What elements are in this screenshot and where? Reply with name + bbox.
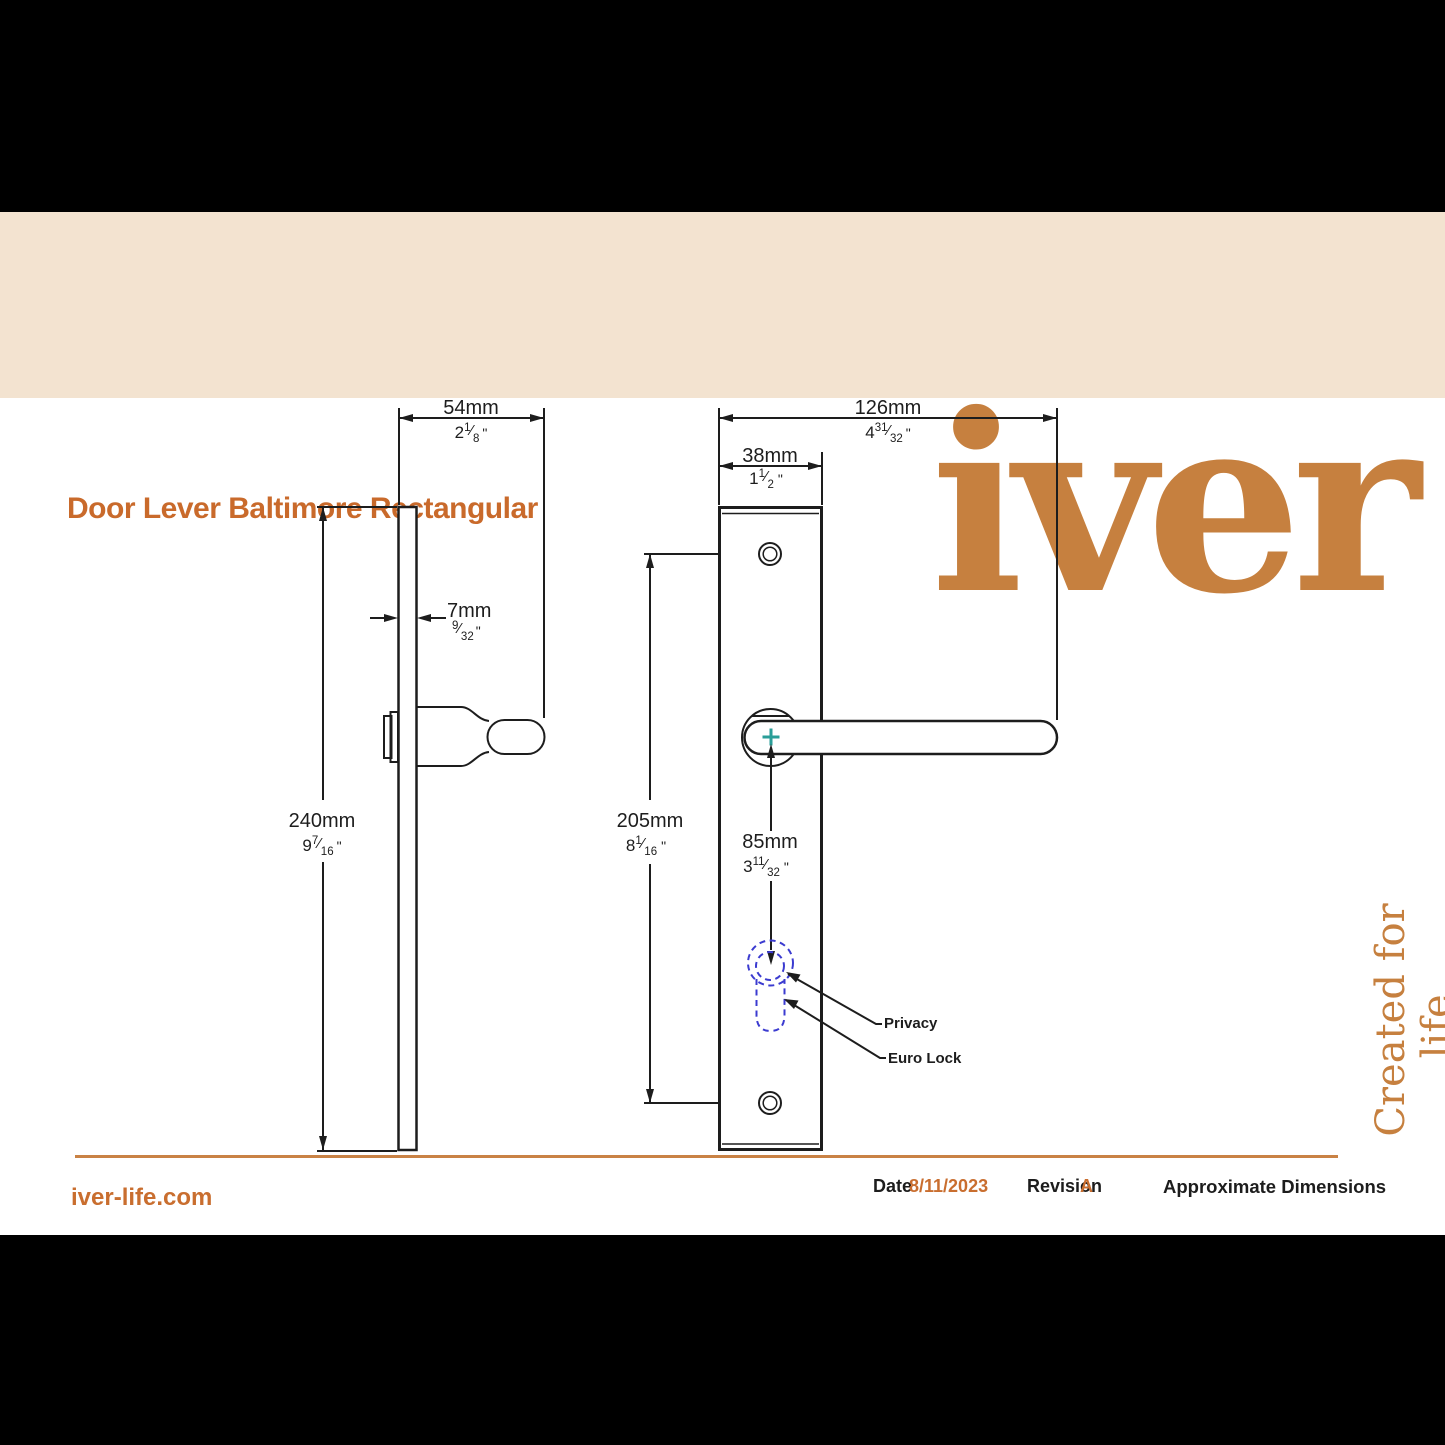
- privacy-label: Privacy: [884, 1015, 938, 1032]
- euro-lock-label: Euro Lock: [888, 1050, 962, 1067]
- bottom-screw-hole-inner: [763, 1096, 777, 1110]
- side-view-backplate: [399, 507, 417, 1150]
- arrowhead: [319, 507, 327, 521]
- dim-240mm-imperial: 97⁄16": [302, 835, 341, 858]
- dim-205mm-label: 205mm: [617, 810, 684, 832]
- arrowhead: [1043, 414, 1057, 422]
- website-link[interactable]: iver-life.com: [71, 1184, 212, 1212]
- dim-126mm-imperial: 431⁄32": [865, 422, 911, 445]
- dim-240mm-label: 240mm: [289, 810, 356, 832]
- dim-38mm-label: 38mm: [742, 445, 798, 467]
- lever-side-bottom-edge: [417, 752, 489, 766]
- arrowhead: [808, 462, 822, 470]
- top-screw-hole-inner: [763, 547, 777, 561]
- arrowhead: [319, 1136, 327, 1150]
- technical-drawing: 54mm 21⁄8" 240mm 97⁄16" 7mm: [0, 398, 1445, 1235]
- dim-7mm-imperial: 9⁄32": [452, 620, 481, 643]
- dim-126mm-label: 126mm: [855, 398, 922, 419]
- bottom-letterbox-bar: [0, 1235, 1445, 1445]
- dim-54mm-label: 54mm: [443, 398, 499, 419]
- date-value: 8/11/2023: [909, 1176, 988, 1197]
- dim-38mm-imperial: 11⁄2": [749, 468, 783, 491]
- arrowhead: [719, 462, 733, 470]
- top-letterbox-bar: [0, 0, 1445, 212]
- arrowhead: [399, 414, 413, 422]
- arrowhead: [646, 1089, 654, 1103]
- dim-205mm-imperial: 81⁄16": [626, 835, 666, 858]
- spec-sheet-page: Door Lever Baltimore Rectangular iver Cr…: [0, 0, 1445, 1445]
- dim-85mm-label: 85mm: [742, 831, 798, 853]
- front-view: 126mm 431⁄32" 38mm 11⁄2" 205mm 81⁄16": [617, 398, 1057, 1150]
- dim-7mm-label: 7mm: [447, 600, 491, 622]
- dim-54mm-imperial: 21⁄8": [455, 422, 488, 445]
- lever-side-top-edge: [417, 707, 489, 721]
- arrowhead: [417, 614, 431, 622]
- header-band: Door Lever Baltimore Rectangular iver: [0, 212, 1445, 398]
- footer-rule: [75, 1155, 1338, 1158]
- lever-side-grip: [488, 720, 545, 754]
- revision-value: A: [1080, 1176, 1093, 1197]
- side-view: 54mm 21⁄8" 240mm 97⁄16" 7mm: [289, 398, 545, 1151]
- arrowhead: [719, 414, 733, 422]
- approximate-dimensions-note: Approximate Dimensions: [1163, 1176, 1386, 1198]
- arrowhead: [646, 554, 654, 568]
- arrowhead: [384, 614, 398, 622]
- arrowhead: [530, 414, 544, 422]
- date-label: Date: [873, 1176, 912, 1197]
- lever-front-bar: [745, 721, 1058, 754]
